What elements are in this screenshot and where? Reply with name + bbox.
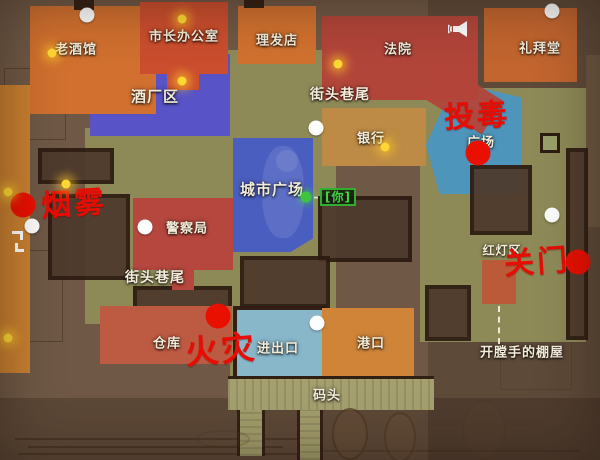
dark-room: [425, 285, 471, 341]
waypoint-marker[interactable]: [545, 4, 560, 19]
player-position-dot[interactable]: [301, 192, 312, 203]
waypoint-marker[interactable]: [138, 220, 153, 235]
dark-room: [566, 148, 588, 340]
dock-label: 码头: [313, 385, 341, 404]
city-plaza-label: 城市广场: [240, 179, 304, 200]
lamp-glow: [62, 180, 71, 189]
courthouse-label: 法院: [384, 39, 412, 58]
police-station-label: 警察局: [166, 218, 208, 237]
lamp-glow: [178, 77, 187, 86]
brewery-district-label: 酒厂区: [131, 86, 179, 107]
pier-sketch-line: [18, 453, 323, 455]
lamp-glow: [4, 334, 13, 343]
port-label: 港口: [357, 333, 385, 352]
lamp-glow: [178, 15, 187, 24]
boat-sketch: [196, 430, 250, 448]
dark-room: [240, 256, 330, 308]
megaphone-icon[interactable]: [448, 19, 470, 39]
fire-event-marker[interactable]: [206, 304, 231, 329]
player-tag-dash: -: [314, 190, 319, 204]
smoke-event-marker[interactable]: [11, 193, 36, 218]
boat-sketch: [332, 408, 368, 460]
shack-pointer-line: [498, 306, 500, 344]
waypoint-marker[interactable]: [310, 316, 325, 331]
rippers-shack-label: 开膛手的棚屋: [480, 342, 564, 361]
gate-closed-event-marker[interactable]: [566, 250, 591, 275]
player-tag: [你]: [320, 188, 356, 206]
right-edge-strip: [586, 55, 600, 227]
statue-head-sketch: [276, 150, 298, 172]
lamp-glow: [334, 60, 343, 69]
old-tavern-label: 老酒馆: [55, 39, 97, 58]
poison-event-marker[interactable]: [466, 141, 491, 166]
boat-sketch: [384, 412, 416, 460]
waypoint-marker[interactable]: [25, 219, 40, 234]
lamp-glow: [48, 49, 57, 58]
waypoint-marker[interactable]: [545, 208, 560, 223]
boat-sketch: [462, 400, 506, 460]
event-poison-text: 投毒: [443, 89, 511, 136]
mayors-office-label: 市长办公室: [149, 26, 219, 45]
entry-exit-label: 进出口: [257, 338, 299, 357]
waypoint-marker[interactable]: [80, 8, 95, 23]
warehouse-label: 仓库: [153, 333, 181, 352]
waypoint-marker[interactable]: [309, 121, 324, 136]
game-map: 老酒馆 市长办公室 理发店 法院 礼拜堂 酒厂区 街头巷尾 银行 广场 城市广场…: [0, 0, 600, 460]
street-corner-upper-label: 街头巷尾: [310, 84, 370, 104]
lamp-glow: [4, 188, 13, 197]
small-green-room: [540, 133, 560, 153]
street-corner-lower-label: 街头巷尾: [125, 267, 185, 287]
barbershop-label: 理发店: [256, 30, 298, 49]
dark-room: [470, 165, 532, 235]
event-smoke-text: 烟雾: [40, 177, 109, 225]
dock-pier: [297, 410, 323, 460]
chapel-label: 礼拜堂: [519, 38, 561, 57]
pier-mark: [12, 231, 23, 240]
pier-mark: [15, 243, 24, 252]
lamp-glow: [381, 143, 390, 152]
chimney-stub: [244, 0, 264, 8]
event-gate-closed-text: 关门: [503, 235, 572, 283]
